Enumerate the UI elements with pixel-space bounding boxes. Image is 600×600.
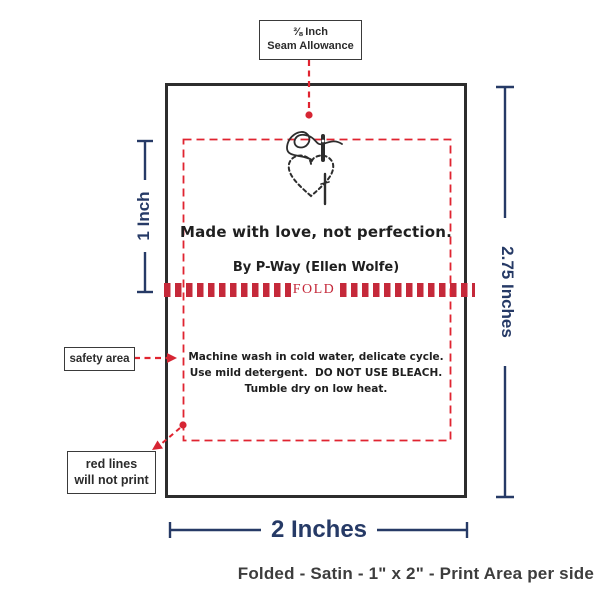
red-lines-callout: red lines will not print [67,451,156,494]
care-line-2: Use mild detergent. DO NOT USE BLEACH. [165,365,467,381]
label-template-diagram: ⅜ Inch Seam Allowance safety area red li… [0,0,600,600]
care-line-1: Machine wash in cold water, delicate cyc… [165,349,467,365]
footer-caption: Folded - Satin - 1" x 2" - Print Area pe… [0,564,594,584]
safety-area-label: safety area [69,352,129,366]
seam-allowance-line2: Seam Allowance [267,40,353,54]
label-message: Made with love, not perfection. [165,223,467,241]
safety-area-callout: safety area [64,347,135,371]
label-byline: By P-Way (Ellen Wolfe) [165,260,467,275]
fold-label: FOLD [291,280,337,299]
label-height-dimension-label: 2.75 Inches [492,218,522,366]
stitched-heart-outline [289,156,334,196]
seam-allowance-callout: ⅜ Inch Seam Allowance [259,20,362,60]
care-line-3: Tumble dry on low heat. [165,381,467,397]
fold-area-dimension-label: 1 Inch [129,180,159,252]
red-lines-arrowhead [152,441,163,451]
red-lines-line2: will not print [74,473,148,489]
label-width-dimension-label: 2 Inches [261,512,377,547]
seam-allowance-line1: ⅜ Inch [293,26,328,40]
red-lines-line1: red lines [86,457,137,473]
needle-bottom-eye-tick [321,182,329,184]
care-instructions: Machine wash in cold water, delicate cyc… [165,349,467,397]
needle-and-thread-heart-icon [281,120,345,210]
needle-eye [322,140,325,143]
